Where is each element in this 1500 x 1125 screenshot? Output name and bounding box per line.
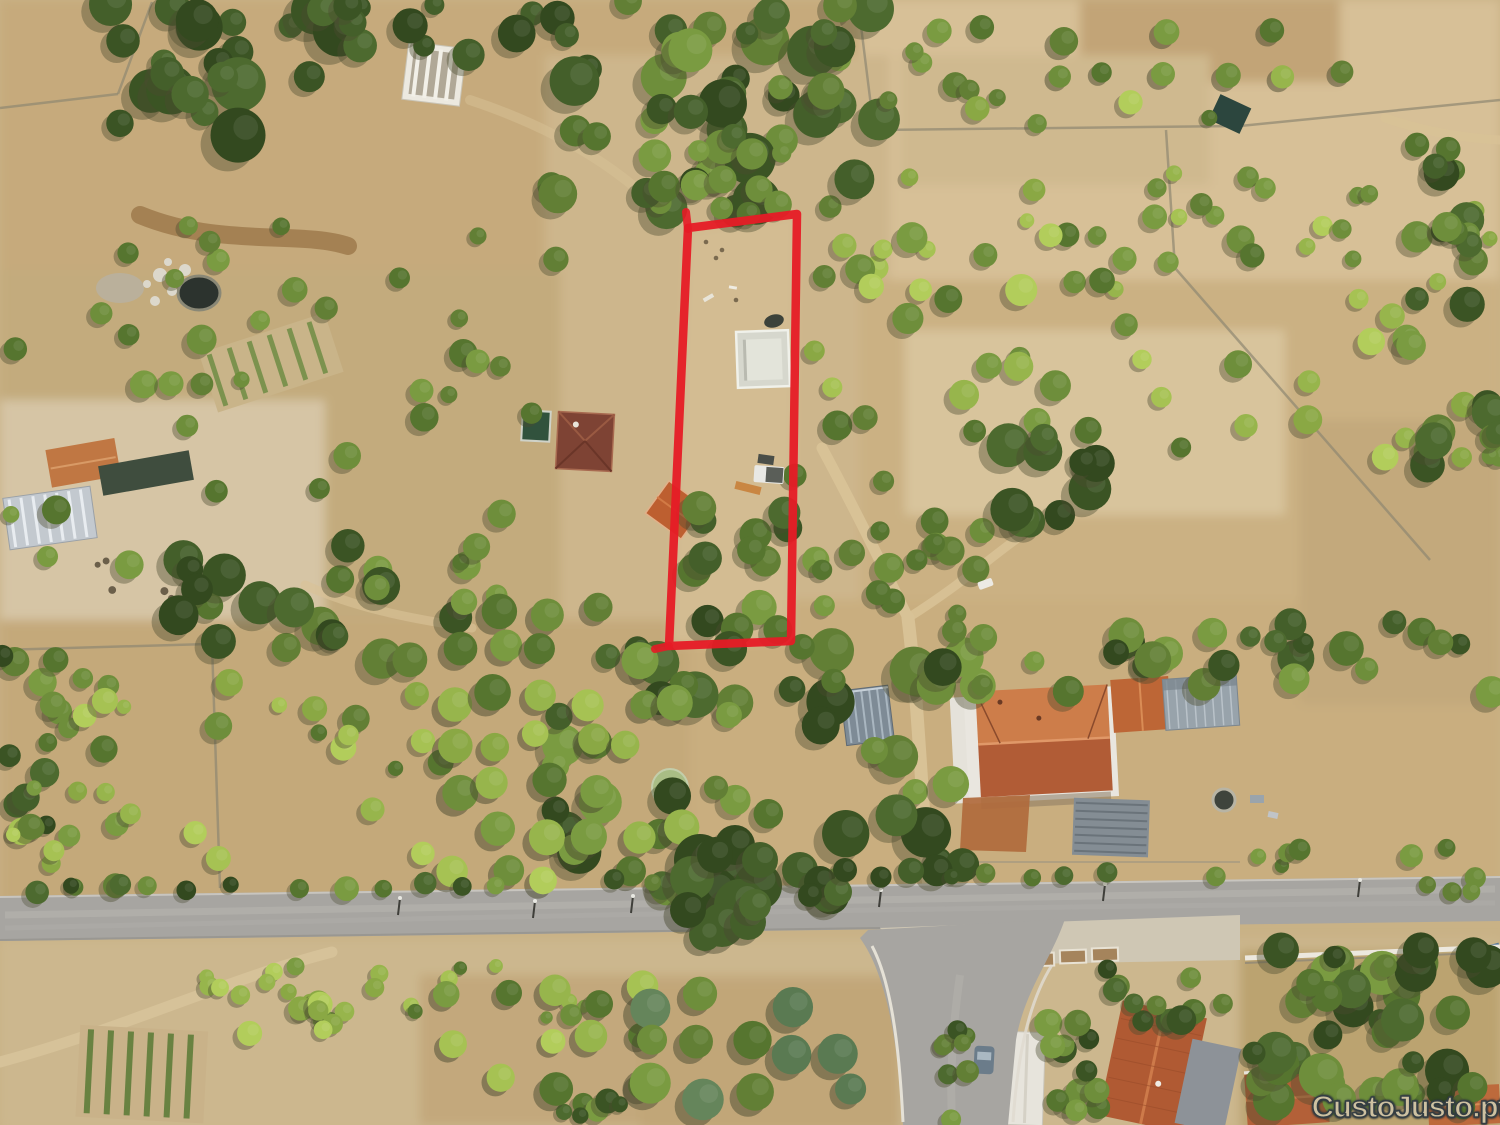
tree-highlight: [779, 129, 794, 144]
tree-highlight: [494, 879, 502, 887]
tree-highlight: [946, 289, 959, 302]
tree-highlight: [459, 963, 465, 969]
tree-highlight: [552, 979, 566, 993]
tree-highlight: [12, 651, 25, 664]
tree-highlight: [175, 601, 193, 619]
tree-highlight: [1409, 335, 1422, 348]
tree-highlight: [118, 113, 130, 125]
tree-highlight: [731, 127, 742, 138]
tree-highlight: [637, 826, 652, 841]
tree-highlight: [476, 353, 487, 364]
tree-highlight: [227, 673, 239, 685]
tree-highlight: [1114, 643, 1126, 655]
tree-highlight: [780, 146, 789, 155]
tree-highlight: [344, 880, 355, 891]
tree-highlight: [618, 1098, 625, 1105]
tree-highlight: [398, 270, 407, 279]
tree-highlight: [756, 595, 772, 611]
tree-highlight: [980, 678, 990, 688]
tree-highlight: [229, 879, 236, 886]
tree-highlight: [757, 179, 769, 191]
lamp-post: [631, 894, 635, 898]
tank-floor: [744, 338, 782, 380]
tree-highlight: [357, 33, 372, 48]
tree-highlight: [317, 1003, 326, 1012]
tree-highlight: [961, 1037, 969, 1045]
tree-highlight: [1150, 646, 1167, 663]
tree-highlight: [1415, 290, 1426, 301]
tree-highlight: [103, 691, 115, 703]
tree-highlight: [194, 578, 208, 592]
tree-highlight: [1438, 633, 1450, 645]
tree-highlight: [831, 380, 840, 389]
tree-highlight: [553, 800, 565, 812]
tree-highlight: [996, 91, 1004, 99]
tree-highlight: [1032, 182, 1042, 192]
tree-highlight: [420, 382, 431, 393]
tree-highlight: [823, 598, 832, 607]
tree-highlight: [987, 356, 999, 368]
tree-highlight: [466, 43, 481, 58]
tree-highlight: [547, 767, 562, 782]
tree-highlight: [1124, 316, 1134, 326]
tree-highlight: [688, 99, 703, 114]
tree-highlight: [1213, 208, 1222, 217]
tree-highlight: [696, 496, 711, 511]
tree-highlight: [749, 1026, 766, 1043]
tree-highlight: [834, 1039, 852, 1057]
tree-highlight: [597, 994, 609, 1006]
tree-highlight: [123, 702, 129, 708]
tree-highlight: [1383, 957, 1393, 967]
tree-highlight: [127, 327, 137, 337]
tree-highlight: [1161, 65, 1172, 76]
tree-highlight: [216, 252, 226, 262]
tree-highlight: [752, 1078, 769, 1095]
tree-highlight: [104, 785, 112, 793]
tree-highlight: [1061, 31, 1074, 44]
tree-highlight: [749, 143, 763, 157]
tree-highlight: [1035, 412, 1047, 424]
tree-highlight: [333, 627, 345, 639]
tree-highlight: [265, 976, 273, 984]
tree-highlight: [461, 880, 469, 888]
tree-highlight: [822, 268, 832, 278]
tree-highlight: [1450, 885, 1459, 894]
tree-highlight: [647, 994, 665, 1012]
tree-highlight: [452, 733, 468, 749]
tree-highlight: [649, 1029, 663, 1043]
tree-highlight: [126, 245, 136, 255]
yard-clutter: [160, 587, 168, 595]
tree-highlight: [926, 243, 934, 251]
tree-highlight: [1128, 93, 1139, 104]
tree-highlight: [476, 230, 484, 238]
tree-highlight: [1236, 354, 1249, 367]
tree-highlight: [905, 307, 919, 321]
tree-highlight: [697, 143, 707, 153]
tree-highlight: [937, 22, 948, 33]
tree-highlight: [908, 171, 916, 179]
tree-highlight: [968, 82, 977, 91]
lamp-post: [398, 896, 402, 900]
tree-highlight: [835, 415, 848, 428]
tree-highlight: [51, 695, 63, 707]
tree-highlight: [893, 741, 912, 760]
tree-highlight: [324, 300, 334, 310]
tree-highlight: [214, 483, 224, 493]
tree-highlight: [934, 859, 948, 873]
tree-highlight: [1270, 21, 1281, 32]
tree-highlight: [1352, 253, 1360, 261]
tree-highlight: [1221, 996, 1230, 1005]
tree-highlight: [1426, 879, 1434, 887]
tree-highlight: [458, 636, 473, 651]
tree-highlight: [1075, 1013, 1087, 1025]
tree-highlight: [1409, 847, 1419, 857]
tree-highlight: [1278, 937, 1294, 953]
yard-clutter: [95, 562, 101, 568]
tree-highlight: [142, 374, 155, 387]
tree-highlight: [1274, 633, 1284, 643]
tree-highlight: [533, 724, 545, 736]
tree-highlight: [669, 782, 686, 799]
tree-highlight: [707, 16, 722, 31]
tree-highlight: [1443, 1055, 1463, 1075]
tree-highlight: [287, 986, 294, 993]
tree-highlight: [272, 965, 280, 973]
tree-highlight: [555, 180, 572, 197]
tree-highlight: [375, 578, 387, 590]
tree-highlight: [1450, 1000, 1465, 1015]
tree-highlight: [81, 671, 90, 680]
tree-highlight: [1053, 374, 1067, 388]
tree-highlight: [506, 859, 520, 873]
tree-highlight: [1122, 250, 1133, 261]
tree-highlight: [878, 524, 887, 533]
tree-highlight: [831, 672, 842, 683]
tree-highlight: [312, 699, 323, 710]
tree-highlight: [322, 1023, 330, 1031]
tree-highlight: [1114, 283, 1121, 290]
tree-highlight: [338, 569, 351, 582]
tree-highlight: [1164, 23, 1176, 35]
tree-highlight: [173, 272, 182, 281]
tree-highlight: [940, 653, 957, 670]
tree-highlight: [307, 65, 321, 79]
tree-highlight: [881, 242, 890, 251]
aerial-photo-canvas: [0, 0, 1500, 1125]
tree-highlight: [1305, 409, 1318, 422]
tree-highlight: [1340, 64, 1350, 74]
tree-highlight: [1307, 373, 1317, 383]
tree-highlight: [1179, 440, 1188, 449]
yard-item: [1250, 795, 1264, 803]
tree-highlight: [1056, 1092, 1066, 1102]
tree-highlight: [1257, 851, 1264, 858]
tree-highlight: [1298, 842, 1308, 852]
tree-highlight: [747, 205, 758, 216]
tree-highlight: [1075, 1102, 1085, 1112]
truck-bed: [765, 467, 783, 483]
tree-highlight: [447, 388, 455, 396]
tree-highlight: [769, 2, 785, 18]
debris: [734, 298, 739, 303]
tree-highlight: [220, 66, 234, 80]
tree-highlight: [215, 629, 231, 645]
tree-highlight: [956, 1023, 965, 1032]
parking-bay: [1060, 950, 1086, 964]
tree-highlight: [451, 1034, 464, 1047]
tree-highlight: [373, 981, 382, 990]
tree-highlight: [378, 967, 386, 975]
tree-highlight: [449, 860, 463, 874]
tree-highlight: [452, 692, 468, 708]
tree-highlight: [1392, 614, 1403, 625]
debris: [704, 240, 709, 245]
tree-highlight: [422, 407, 435, 420]
tree-highlight: [53, 651, 65, 663]
tree-highlight: [983, 246, 994, 257]
tree-highlight: [565, 26, 576, 37]
tree-highlight: [407, 13, 423, 29]
tree-highlight: [13, 340, 24, 351]
tree-highlight: [1226, 66, 1237, 77]
tree-highlight: [1433, 157, 1444, 168]
tree-highlight: [233, 115, 258, 140]
tree-highlight: [1317, 1059, 1337, 1079]
tree-highlight: [1096, 229, 1104, 237]
tree-highlight: [35, 884, 46, 895]
tree-highlight: [1100, 271, 1112, 283]
tree-highlight: [33, 782, 40, 789]
tree-highlight: [1132, 996, 1141, 1005]
tree-highlight: [687, 34, 707, 54]
tree-highlight: [1291, 668, 1305, 682]
tree-highlight: [702, 546, 717, 561]
tree-highlight: [1081, 452, 1093, 464]
tree-highlight: [1463, 207, 1479, 223]
tree-highlight: [623, 734, 636, 747]
tree-highlight: [185, 883, 194, 892]
tree-highlight: [495, 961, 501, 967]
tree-highlight: [119, 877, 129, 887]
tree-highlight: [415, 685, 426, 696]
tree-highlight: [1415, 136, 1426, 147]
tree-highlight: [1105, 865, 1114, 874]
tree-highlight: [127, 554, 140, 567]
tree-highlight: [848, 1078, 862, 1092]
tree-highlight: [818, 712, 835, 729]
tree-highlight: [1031, 871, 1039, 879]
tree-highlight: [975, 99, 986, 110]
tree-highlight: [720, 200, 730, 210]
tree-highlight: [699, 1084, 718, 1103]
tree-highlight: [421, 732, 432, 743]
tree-highlight: [579, 1110, 586, 1117]
tree-highlight: [679, 814, 695, 830]
tree-highlight: [448, 973, 456, 981]
tree-highlight: [230, 12, 242, 24]
tree-highlight: [909, 861, 921, 873]
tank-shadow: [744, 340, 745, 381]
tree-highlight: [489, 771, 503, 785]
tree-highlight: [28, 817, 40, 829]
tree-highlight: [240, 374, 247, 381]
tree-highlight: [343, 1004, 352, 1013]
tree-highlight: [507, 983, 519, 995]
tree-highlight: [872, 741, 884, 753]
tree-highlight: [458, 312, 466, 320]
tree-highlight: [952, 622, 963, 633]
tree-highlight: [712, 842, 728, 858]
tree-highlight: [1046, 1013, 1059, 1026]
tree-highlight: [752, 893, 766, 907]
tree-highlight: [1073, 274, 1083, 284]
tree-highlight: [882, 473, 891, 482]
tree-highlight: [407, 647, 423, 663]
tree-highlight: [681, 675, 694, 688]
tree-highlight: [107, 678, 117, 688]
tree-highlight: [948, 540, 961, 553]
tree-highlight: [278, 699, 285, 706]
tree-highlight: [1306, 240, 1314, 248]
tree-highlight: [1058, 68, 1068, 78]
gray-pergola: [1072, 798, 1150, 858]
tree-highlight: [637, 647, 654, 664]
tree-highlight: [1302, 636, 1311, 645]
tree-highlight: [1368, 187, 1376, 195]
tree-highlight: [52, 843, 61, 852]
tree-highlight: [591, 728, 605, 742]
tree-highlight: [1369, 331, 1381, 343]
tree-highlight: [596, 597, 609, 610]
tree-highlight: [851, 165, 869, 183]
tree-highlight: [1263, 180, 1272, 189]
tree-highlight: [12, 830, 18, 836]
tree-highlight: [1246, 169, 1256, 179]
tree-highlight: [959, 853, 974, 868]
tree-highlight: [194, 5, 213, 24]
tree-highlight: [813, 343, 822, 352]
tree-highlight: [790, 680, 802, 692]
tree-highlight: [258, 313, 267, 322]
tree-highlight: [933, 536, 942, 545]
tree-highlight: [606, 647, 617, 658]
tree-highlight: [1418, 937, 1434, 953]
tree-highlight: [612, 872, 621, 881]
tree-highlight: [823, 78, 840, 95]
tree-highlight: [1436, 275, 1444, 283]
car-windshield: [977, 1052, 991, 1061]
tree-highlight: [732, 830, 750, 848]
tree-highlight: [1252, 1045, 1262, 1055]
tree-highlight: [1390, 307, 1401, 318]
tree-highlight: [1470, 885, 1478, 893]
tree-highlight: [1100, 65, 1109, 74]
debris: [720, 248, 725, 253]
tree-highlight: [1444, 216, 1457, 229]
pickup-truck: [753, 465, 784, 484]
tree-highlight: [247, 1024, 258, 1035]
tree-highlight: [966, 1063, 976, 1073]
tree-highlight: [778, 78, 789, 89]
tree-highlight: [489, 679, 505, 695]
tree-highlight: [1324, 985, 1338, 999]
tree-highlight: [984, 866, 993, 875]
tree-highlight: [720, 169, 733, 182]
tree-highlight: [10, 508, 18, 516]
tree-highlight: [893, 800, 912, 819]
tree-highlight: [697, 981, 712, 996]
tree-highlight: [932, 511, 944, 523]
rubble: [150, 296, 160, 306]
tree-highlight: [187, 219, 196, 228]
tree-highlight: [146, 879, 155, 888]
tree-highlight: [1419, 622, 1432, 635]
tree-highlight: [1460, 450, 1469, 459]
tree-highlight: [423, 875, 433, 885]
tree-highlight: [1325, 1024, 1338, 1037]
tree-highlight: [514, 20, 531, 37]
tree-highlight: [1095, 1081, 1106, 1092]
tree-highlight: [554, 250, 565, 261]
tree-highlight: [0, 648, 10, 658]
tree-highlight: [284, 637, 297, 650]
tree-highlight: [776, 194, 788, 206]
tree-highlight: [961, 384, 975, 398]
tree-highlight: [820, 562, 829, 571]
tree-highlight: [193, 824, 203, 834]
tree-highlight: [734, 617, 749, 632]
tree-highlight: [1113, 981, 1124, 992]
tree-highlight: [1155, 181, 1164, 190]
tree-highlight: [1086, 421, 1098, 433]
tree-highlight: [538, 684, 552, 698]
tree-highlight: [1042, 428, 1054, 440]
tree-highlight: [1458, 637, 1467, 646]
tree-highlight: [693, 1029, 708, 1044]
tree-highlight: [554, 5, 570, 21]
tree-highlight: [949, 1112, 958, 1121]
tree-highlight: [702, 923, 716, 937]
tree-highlight: [727, 705, 739, 717]
tree-highlight: [876, 584, 887, 595]
tree-highlight: [1470, 942, 1486, 958]
tree-highlight: [714, 779, 725, 790]
tree-highlight: [1123, 622, 1139, 638]
house-dark-red-roof: [556, 412, 615, 472]
tree-highlight: [1033, 654, 1042, 663]
tree-highlight: [444, 985, 456, 997]
tree-highlight: [199, 329, 212, 342]
tree-highlight: [188, 560, 200, 572]
tree-highlight: [537, 637, 551, 651]
tree-highlight: [652, 144, 667, 159]
tree-highlight: [1026, 215, 1033, 222]
tree-highlight: [99, 305, 109, 315]
tree-highlight: [553, 1077, 568, 1092]
tree-highlight: [1470, 1076, 1484, 1090]
tree-highlight: [541, 870, 554, 883]
tree-highlight: [586, 823, 602, 839]
tree-highlight: [7, 747, 17, 757]
tree-highlight: [570, 63, 592, 85]
tree-highlight: [216, 716, 228, 728]
tree-highlight: [499, 359, 508, 368]
tree-highlight: [42, 762, 55, 775]
tree-highlight: [757, 847, 773, 863]
